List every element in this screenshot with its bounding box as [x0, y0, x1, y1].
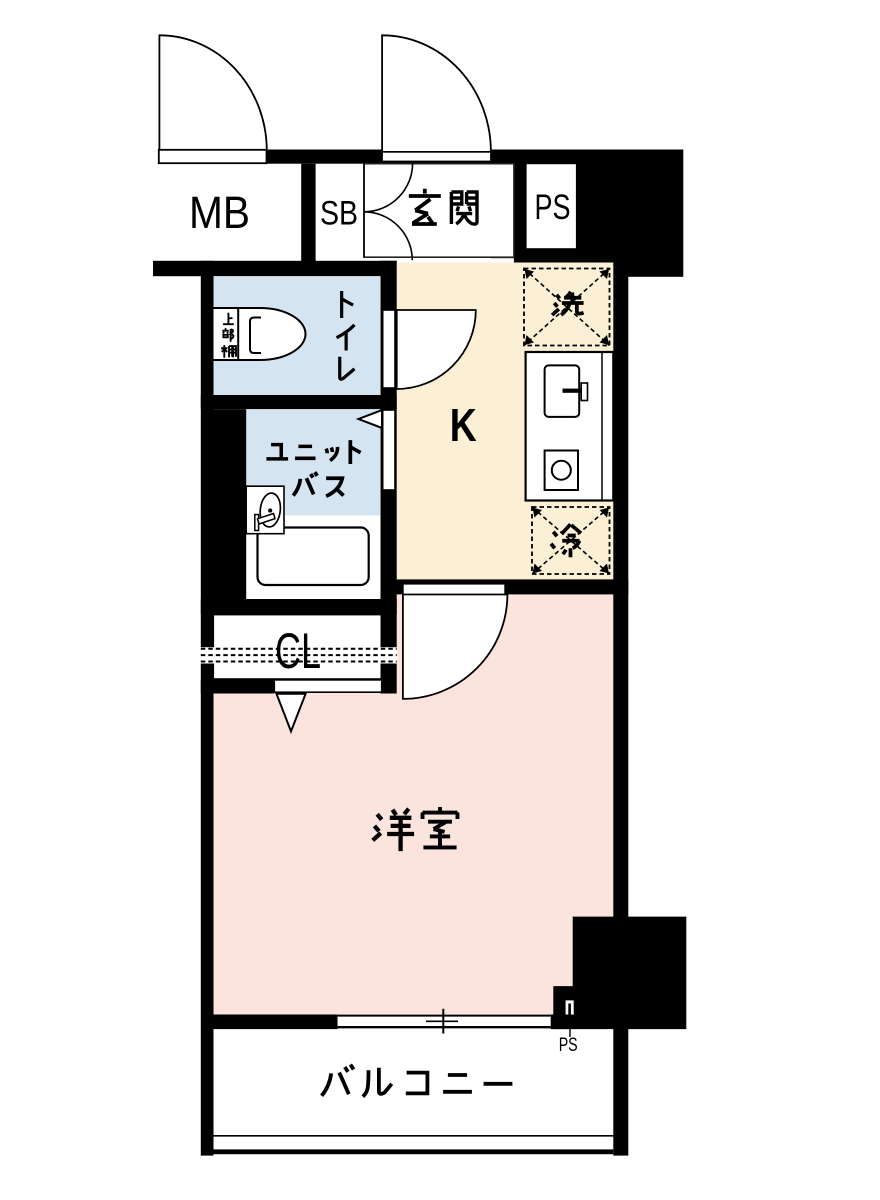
svg-text:PS: PS	[559, 1035, 578, 1056]
svg-text:SB: SB	[320, 195, 358, 233]
svg-text:MB: MB	[189, 187, 250, 238]
svg-text:PS: PS	[535, 188, 571, 227]
svg-text:CL: CL	[275, 623, 321, 679]
svg-text:K: K	[450, 399, 477, 451]
